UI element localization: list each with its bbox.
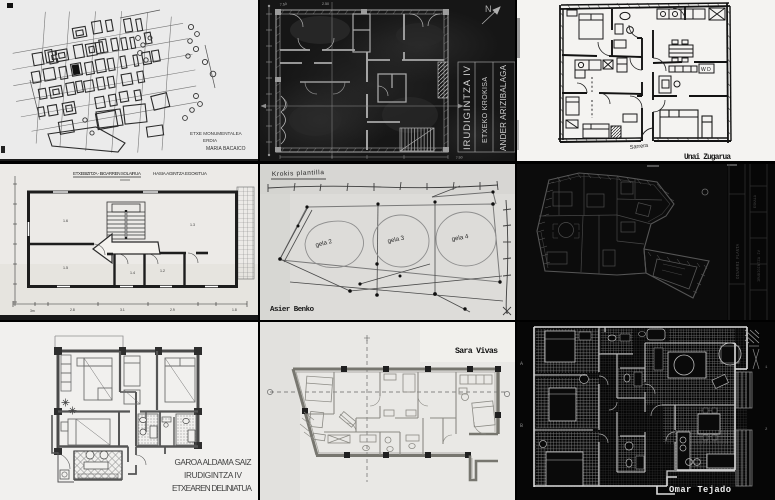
svg-text:Sarrera: Sarrera [630,143,650,151]
svg-text:1.4: 1.4 [130,271,135,275]
svg-text:3.1: 3.1 [120,308,125,312]
svg-text:1.8: 1.8 [232,308,237,312]
svg-text:N: N [485,4,492,14]
svg-text:OINARRI PLANTA: OINARRI PLANTA [737,243,741,279]
svg-text:Unai Zugarua: Unai Zugarua [684,154,731,161]
svg-text:W D: W D [701,67,711,73]
svg-text:ESKALA: ESKALA [754,194,758,208]
svg-text:2.9: 2.9 [170,308,175,312]
svg-text:GAROA ALDAMA SAIZ: GAROA ALDAMA SAIZ [175,458,252,467]
svg-text:1.2: 1.2 [160,269,165,273]
svg-text:Sara Vivas: Sara Vivas [455,346,498,356]
svg-text:HASIA AGINTZA EGOKITUA: HASIA AGINTZA EGOKITUA [153,171,208,176]
svg-text:3m: 3m [30,309,35,313]
svg-text:7.50: 7.50 [280,2,287,7]
svg-text:gela 2: gela 2 [315,238,334,249]
svg-text:gela 3: gela 3 [387,234,405,244]
svg-text:ETXEBIZITZA - BIGARREN SOLAIRU: ETXEBIZITZA - BIGARREN SOLAIRUA [73,171,142,176]
svg-text:ETXE MONUMENTALEA: ETXE MONUMENTALEA [190,131,243,136]
svg-text:IRUDIGINTZA IV: IRUDIGINTZA IV [758,249,762,282]
svg-text:2: 2 [765,428,768,432]
svg-text:ETXEAREN DELINIATUA: ETXEAREN DELINIATUA [172,484,253,493]
svg-text:A: A [520,361,523,367]
svg-text:ERDIA: ERDIA [203,138,218,143]
svg-text:MARIA BACAICO: MARIA BACAICO [206,146,246,152]
svg-text:ANDER ARIZIBALAGA: ANDER ARIZIBALAGA [499,64,508,151]
svg-text:1.3: 1.3 [190,223,195,227]
svg-text:IRUDIGINTZA IV: IRUDIGINTZA IV [462,65,473,150]
svg-text:B: B [520,423,523,429]
svg-text:Omar Tejado: Omar Tejado [669,485,731,495]
svg-text:1.6: 1.6 [63,219,68,223]
svg-text:1.5: 1.5 [63,266,68,270]
svg-text:7.50: 7.50 [456,155,463,160]
svg-text:gela 4: gela 4 [451,233,469,243]
svg-text:2.50: 2.50 [322,2,329,6]
svg-text:ETXEKO KROKISA: ETXEKO KROKISA [482,77,489,143]
svg-text:IRUDIGINTZA IV: IRUDIGINTZA IV [184,471,243,480]
svg-text:2.8: 2.8 [70,308,75,312]
svg-text:1: 1 [765,366,768,370]
svg-text:Asier Benko: Asier Benko [270,306,315,314]
